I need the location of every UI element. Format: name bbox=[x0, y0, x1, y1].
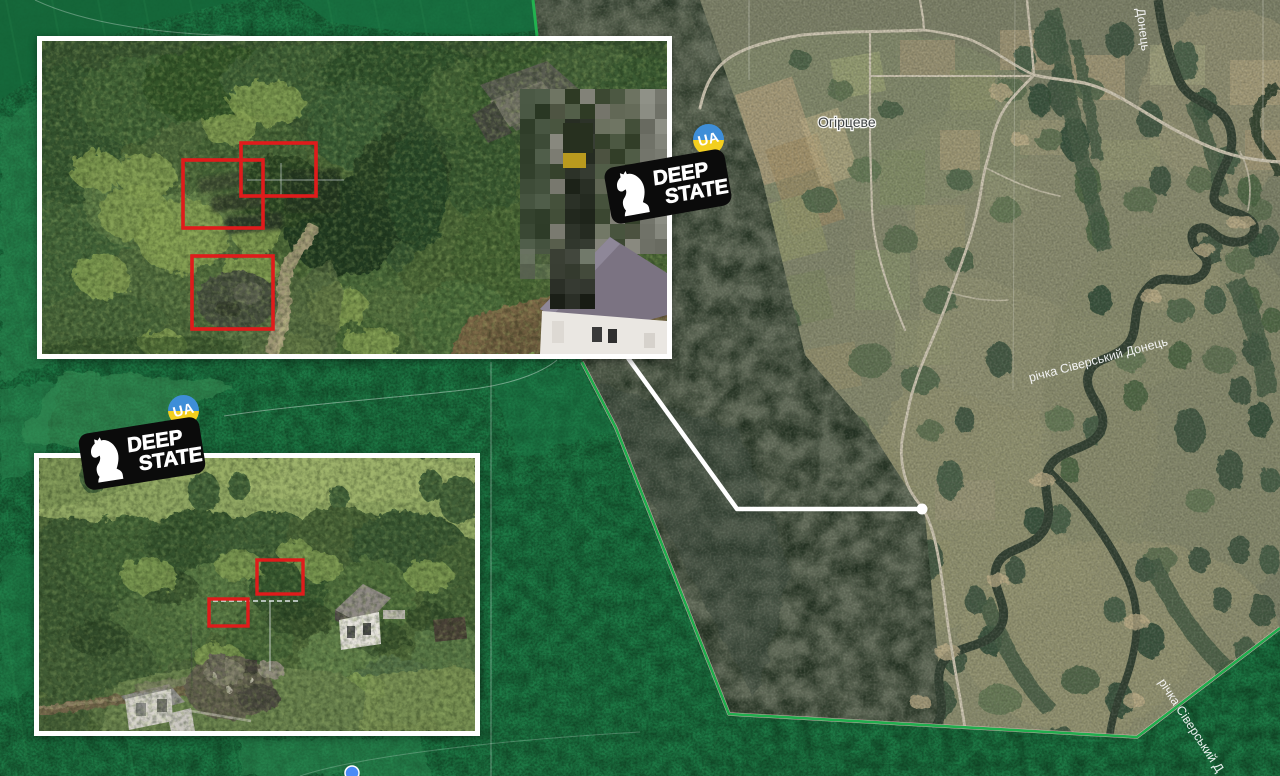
svg-text:Огірцеве: Огірцеве bbox=[818, 114, 876, 130]
